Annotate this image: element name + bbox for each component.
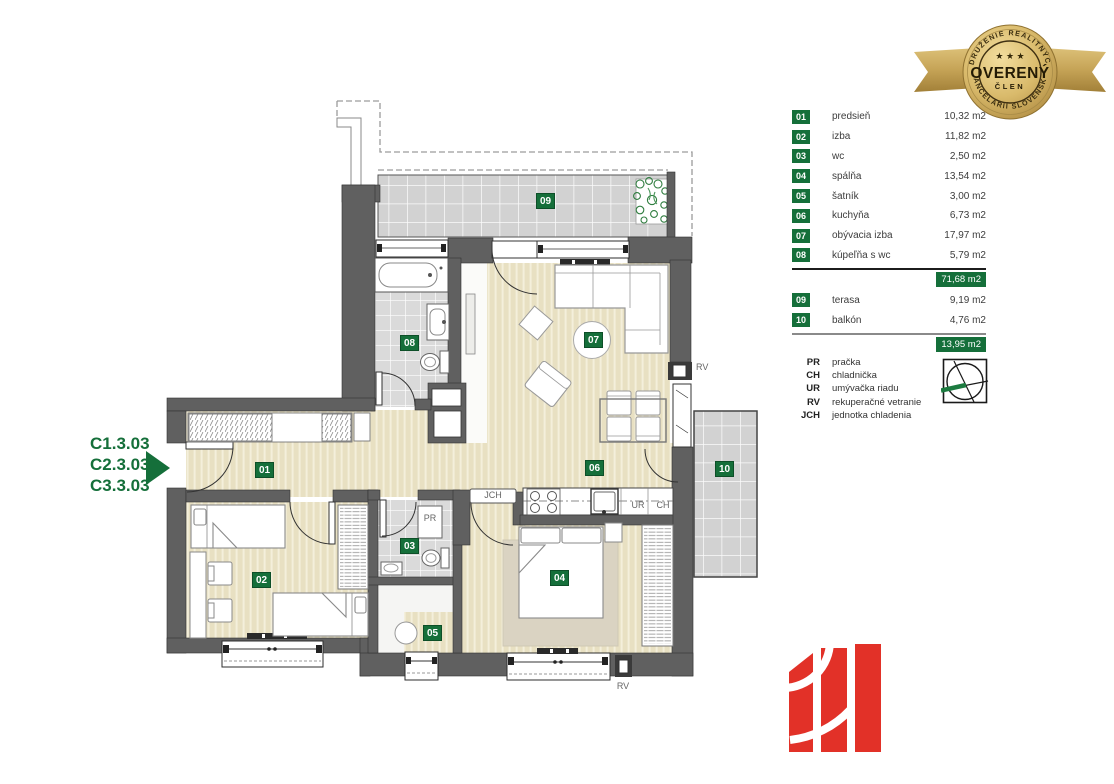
hall-wardrobe-icon (188, 413, 370, 442)
abbr-meaning: jednotka chladenia (832, 410, 911, 421)
wardrobe04-icon (642, 525, 673, 646)
brand-logo (782, 640, 892, 756)
badge-stars: ★ ★ ★ (995, 51, 1024, 61)
abbr-key: PR (792, 357, 820, 368)
room-area: 11,82 m2 (945, 131, 986, 142)
room-label-05: 05 (423, 625, 442, 641)
balcony (694, 411, 757, 577)
room-label-06: 06 (585, 460, 604, 476)
abbr-row: JCH jednotka chladenia (792, 409, 992, 422)
room-area: 9,19 m2 (950, 295, 986, 306)
legend-row: 05 šatník 3,00 m2 (792, 186, 986, 206)
legend-row: 04 spálňa 13,54 m2 (792, 166, 986, 186)
room-area: 17,97 m2 (944, 230, 986, 241)
legend-row: 08 kúpeľňa s wc 5,79 m2 (792, 246, 986, 266)
nightstand-icon (605, 523, 622, 542)
room-name: spálňa (832, 171, 944, 182)
certification-badge: ZDRUŽENIE REALITNÝCH KANCELÁRIÍ SLOVENSK… (912, 16, 1108, 128)
abbr-key: UR (792, 383, 820, 394)
compass-icon (941, 357, 989, 405)
room-label-02: 02 (252, 572, 271, 588)
room-label-03: 03 (400, 538, 419, 554)
apartment-code: C3.3.03 (90, 475, 150, 496)
wc-sink-icon (381, 562, 402, 575)
room-number-badge: 02 (792, 130, 810, 144)
abbr-meaning: chladnička (832, 370, 877, 381)
room-label-10: 10 (715, 461, 734, 477)
room-number-badge: 01 (792, 110, 810, 124)
terrace (378, 175, 668, 237)
room-number-badge: 05 (792, 189, 810, 203)
room-name: kúpeľňa s wc (832, 250, 950, 261)
fridge-label: CH (653, 500, 673, 510)
boundary-wall-strip (337, 118, 361, 188)
room-name: šatník (832, 191, 950, 202)
room-label-09: 09 (536, 193, 555, 209)
cooling-unit-label: JCH (478, 490, 508, 500)
room-area: 2,50 m2 (950, 151, 986, 162)
room-name: balkón (832, 315, 950, 326)
total-interior-row: 71,68 m2 (792, 272, 986, 287)
washer-label: PR (418, 513, 442, 523)
room-area: 4,76 m2 (950, 315, 986, 326)
room-number-badge: 08 (792, 248, 810, 262)
room-legend: 01 predsieň 10,32 m2 02 izba 11,82 m2 03… (792, 107, 986, 355)
legend-separator (792, 333, 986, 335)
abbr-key: RV (792, 397, 820, 408)
abbr-meaning: rekuperačné vetranie (832, 397, 921, 408)
badge-title: OVERENÝ (970, 64, 1049, 82)
legend-row: 09 terasa 9,19 m2 (792, 290, 986, 310)
legend-row: 03 wc 2,50 m2 (792, 147, 986, 167)
apartment-codes: C1.3.03 C2.3.03 C3.3.03 (90, 433, 150, 496)
wc-toilet-icon (422, 548, 449, 568)
room-name: obývacia izba (832, 230, 944, 241)
sliding-door (466, 294, 475, 354)
room-area: 13,54 m2 (944, 171, 986, 182)
total-outdoor-area: 13,95 m2 (936, 337, 986, 352)
room-label-07: 07 (584, 332, 603, 348)
room-number-badge: 10 (792, 313, 810, 327)
room-number-badge: 03 (792, 149, 810, 163)
rv-right-label: RV (696, 362, 708, 372)
abbr-key: CH (792, 370, 820, 381)
bath-sink-icon (427, 304, 449, 340)
room-name: wc (832, 151, 950, 162)
room-number-badge: 04 (792, 169, 810, 183)
kitchen-counter (523, 488, 673, 515)
legend-row: 06 kuchyňa 6,73 m2 (792, 206, 986, 226)
apartment-code: C2.3.03 (90, 454, 150, 475)
room-name: terasa (832, 295, 950, 306)
total-outdoor-row: 13,95 m2 (792, 337, 986, 352)
total-interior-area: 71,68 m2 (936, 272, 986, 287)
legend-row: 02 izba 11,82 m2 (792, 127, 986, 147)
dishwasher-label: UR (628, 500, 648, 510)
room-label-08: 08 (400, 335, 419, 351)
room-label-04: 04 (550, 570, 569, 586)
legend-separator (792, 268, 986, 270)
room-area: 5,79 m2 (950, 250, 986, 261)
rv-bottom-label: RV (613, 681, 633, 691)
room-number-badge: 09 (792, 293, 810, 307)
badge-subtitle: ČLEN (995, 82, 1025, 91)
legend-row: 07 obývacia izba 17,97 m2 (792, 226, 986, 246)
entrance-arrow-icon (146, 451, 170, 485)
room-area: 3,00 m2 (950, 191, 986, 202)
wardrobe02-icon (338, 505, 368, 589)
abbr-key: JCH (792, 410, 820, 421)
room-number-badge: 07 (792, 229, 810, 243)
room-name: kuchyňa (832, 210, 950, 221)
room-number-badge: 06 (792, 209, 810, 223)
apartment-code: C1.3.03 (90, 433, 150, 454)
room-label-01: 01 (255, 462, 274, 478)
installation-shafts (432, 389, 461, 437)
legend-row: 10 balkón 4,76 m2 (792, 310, 986, 330)
bed2-icon (273, 593, 368, 636)
abbr-meaning: pračka (832, 357, 861, 368)
room-area: 6,73 m2 (950, 210, 986, 221)
abbr-meaning: umývačka riadu (832, 383, 899, 394)
bathtub-icon (375, 258, 448, 292)
room-name: izba (832, 131, 945, 142)
bed1-icon (191, 505, 285, 548)
floorplan-page: 01 02 03 04 05 06 07 08 09 10 PR UR CH J… (0, 0, 1114, 784)
kitchen-sink-icon (591, 489, 618, 514)
